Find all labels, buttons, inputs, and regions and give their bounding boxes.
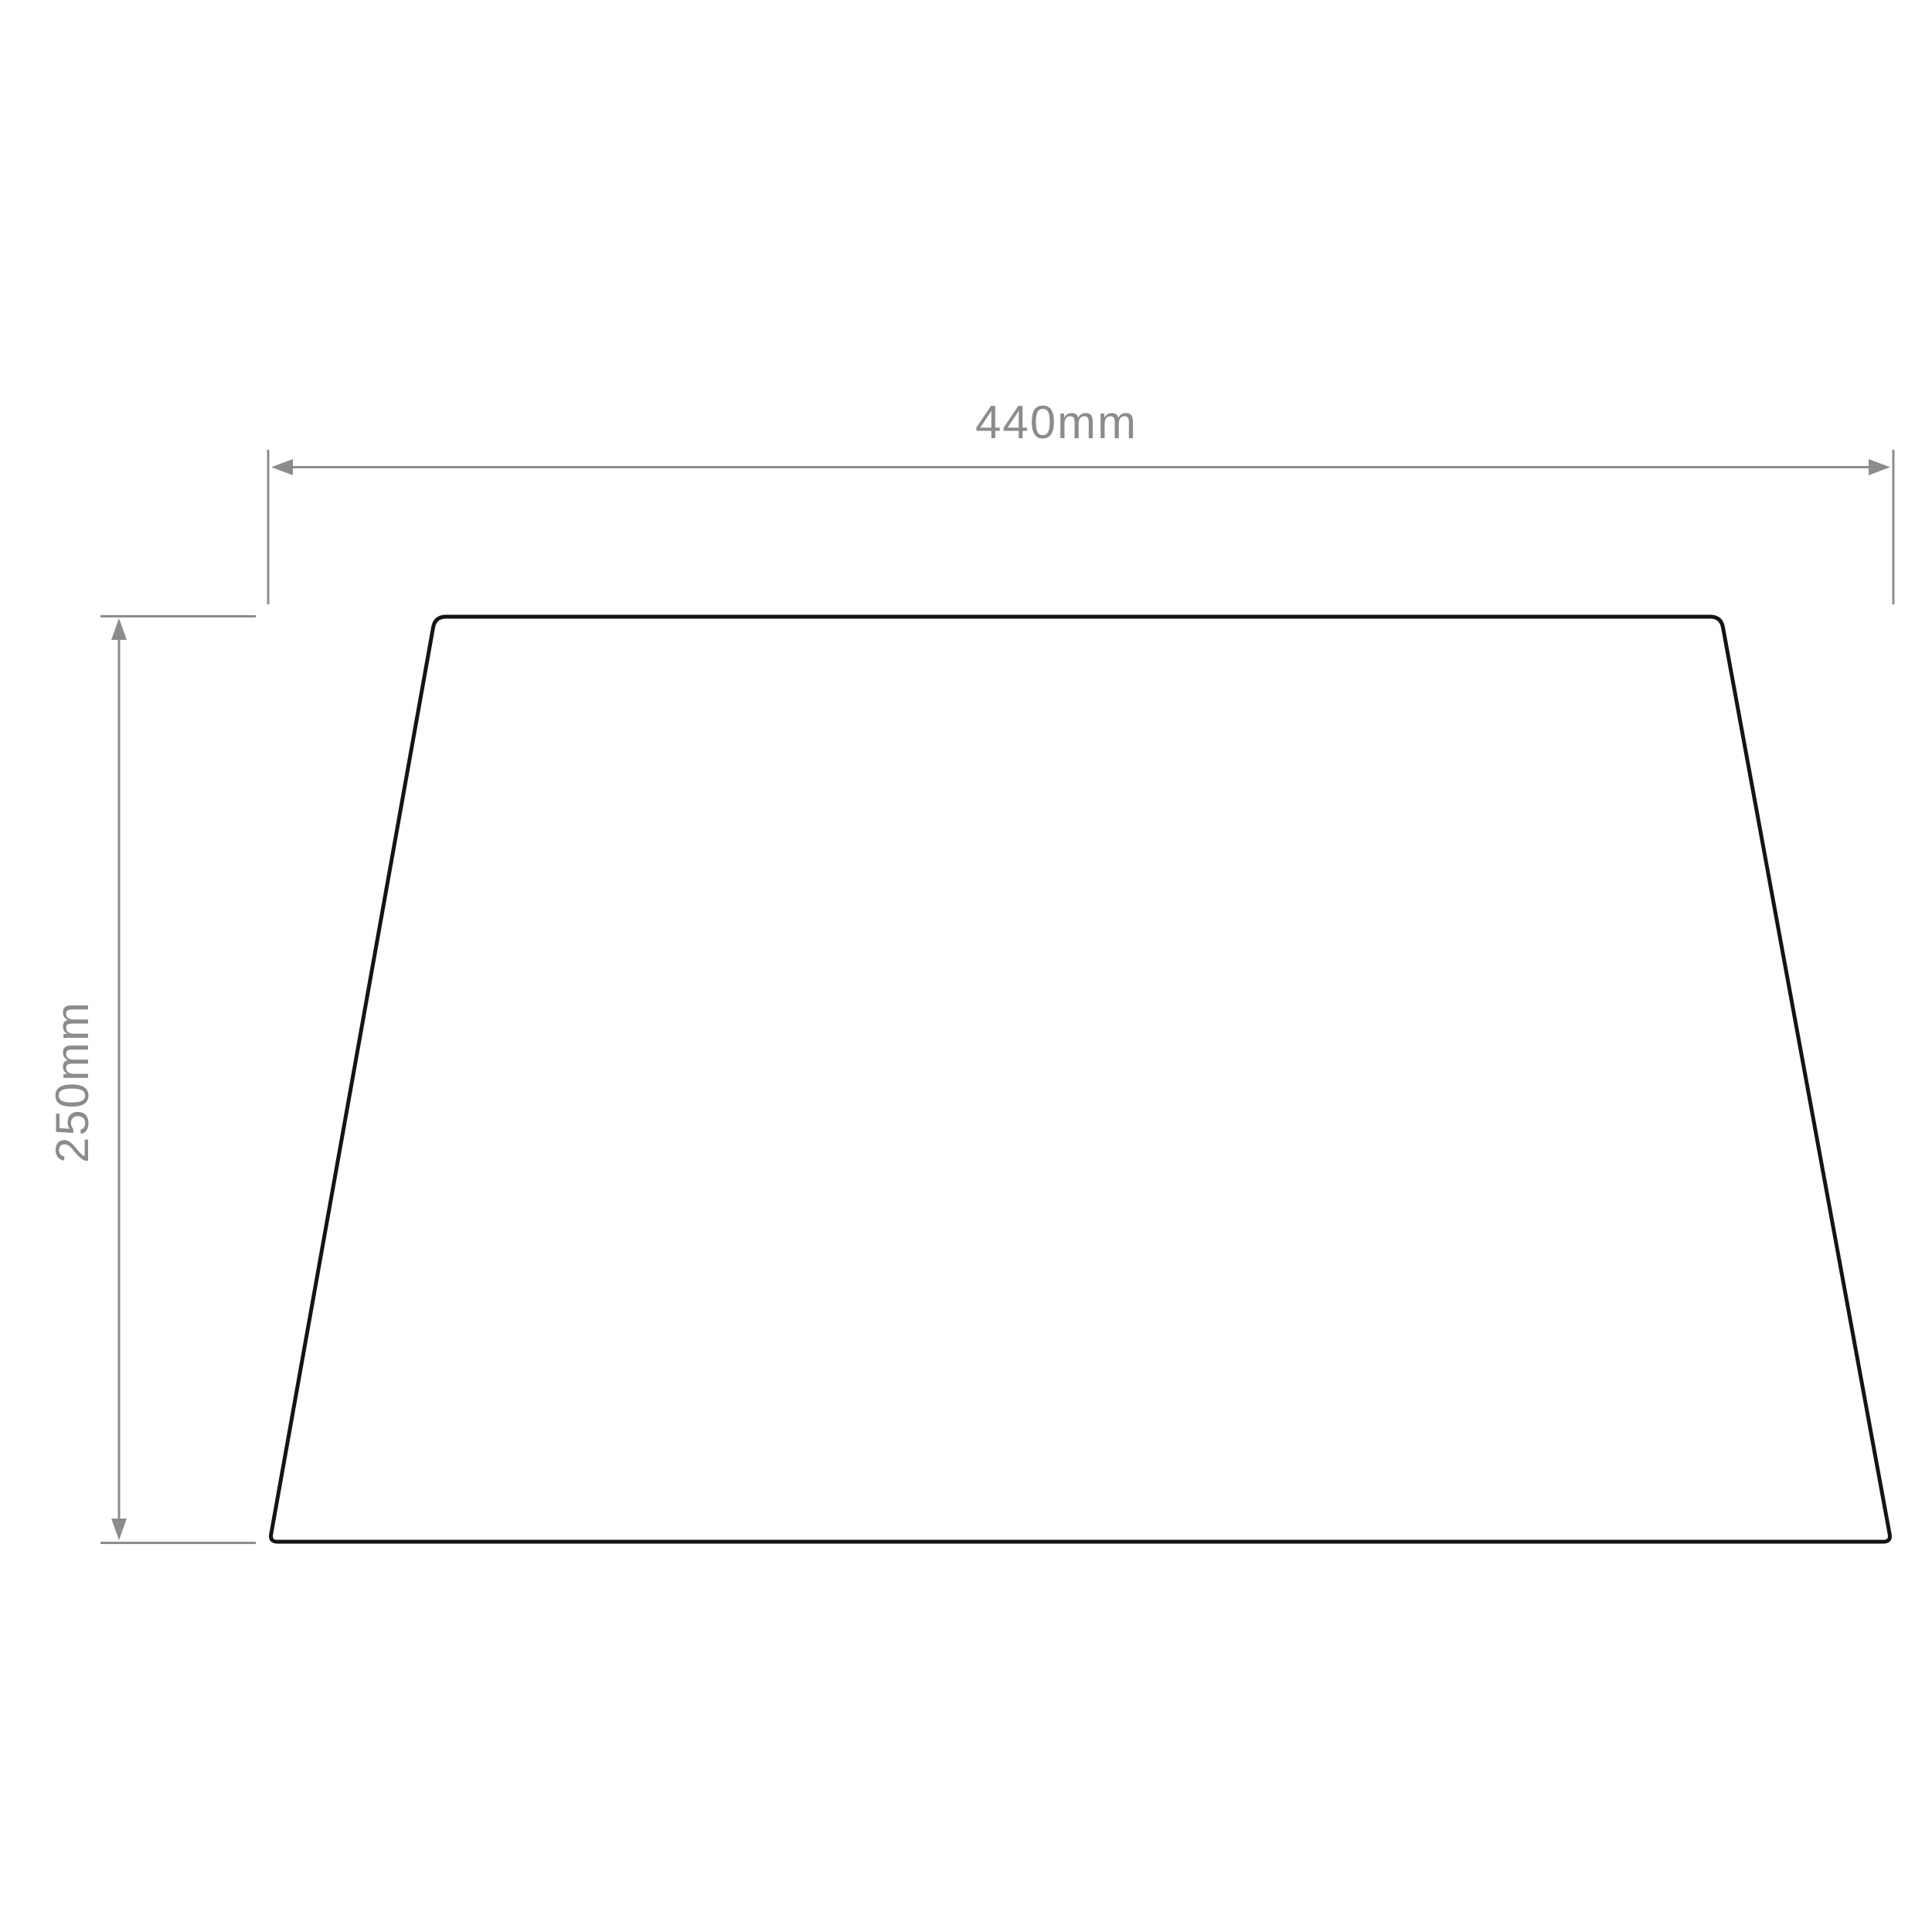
arrowhead-down-icon [111,1519,127,1540]
arrowhead-left-icon [271,459,293,475]
arrowhead-right-icon [1869,459,1890,475]
height-dimension-label: 250mm [46,1001,98,1163]
arrowhead-up-icon [111,618,127,640]
width-dimension-label: 440mm [975,396,1138,448]
diagram-canvas: 440mm 250mm [0,0,1932,1932]
dimension-diagram: 440mm 250mm [0,0,1932,1932]
lampshade-outline [271,617,1890,1542]
